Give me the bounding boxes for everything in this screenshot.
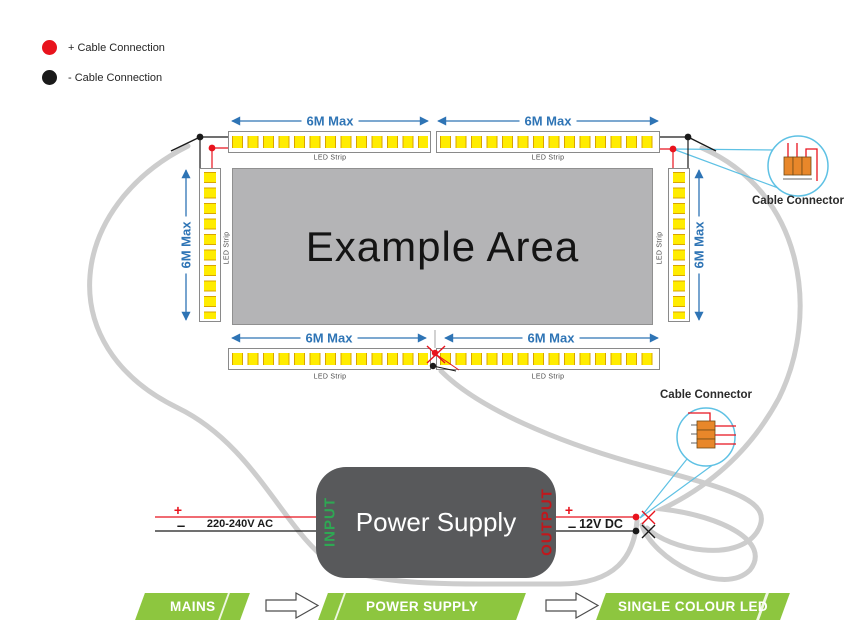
legend-positive-label: + Cable Connection: [68, 42, 165, 54]
connector-callout-circle-bottom: [677, 408, 735, 466]
dc-plus-sign: +: [565, 502, 573, 518]
dimension-right: 6M Max: [692, 217, 707, 274]
led-strip-caption-top-left: LED Strip: [314, 155, 347, 162]
led-row: [204, 172, 216, 319]
led-strip-bottom-left: [228, 348, 431, 370]
cable-connector-label-top: Cable Connector: [752, 195, 844, 207]
led-strip-top-right: [436, 131, 660, 153]
led-strip-left: [199, 168, 221, 322]
flow-arrow-1: [266, 593, 318, 618]
dimension-top-right: 6M Max: [520, 114, 577, 129]
legend-item-negative: - Cable Connection: [42, 70, 162, 85]
dc-voltage-label: 12V DC: [579, 517, 623, 531]
negative-cable-dot-icon: [42, 70, 57, 85]
ac-voltage-label: 220-240V AC: [207, 518, 273, 530]
connector-callout-circle-top: [768, 136, 828, 196]
led-row: [232, 136, 428, 148]
banner-slash: [333, 593, 347, 620]
ac-plus-sign: +: [174, 502, 182, 518]
dc-minus-sign: –: [568, 519, 576, 536]
example-area: Example Area: [232, 168, 653, 325]
led-strip-top-left: [228, 131, 431, 153]
flow-step-power-supply-label: POWER SUPPLY: [366, 599, 478, 614]
cable-connector-glyph-top: [783, 143, 817, 181]
legend-item-positive: + Cable Connection: [42, 40, 165, 55]
ac-minus-sign: –: [177, 518, 185, 535]
power-supply-output-label: OUTPUT: [539, 488, 556, 556]
banner-slash: [217, 593, 231, 620]
dimension-left: 6M Max: [179, 217, 194, 274]
led-strip-caption-top-right: LED Strip: [532, 155, 565, 162]
wires-top-left: [171, 134, 228, 168]
led-strip-caption-left: LED Strip: [224, 232, 231, 265]
flow-step-single-colour-led: SINGLE COLOUR LED: [596, 593, 790, 620]
led-strip-caption-bottom-left: LED Strip: [314, 374, 347, 381]
flow-step-single-colour-led-label: SINGLE COLOUR LED: [618, 599, 768, 614]
led-strip-right: [668, 168, 690, 322]
dimension-bottom-right: 6M Max: [523, 331, 580, 346]
example-area-label: Example Area: [306, 223, 579, 271]
led-row: [232, 353, 428, 365]
positive-cable-dot-icon: [42, 40, 57, 55]
led-strip-caption-bottom-right: LED Strip: [532, 374, 565, 381]
flow-arrow-2: [546, 593, 598, 618]
flow-step-mains: MAINS: [135, 593, 250, 620]
cable-right-loop: [642, 148, 800, 579]
wiring-diagram-canvas: + Cable Connection - Cable Connection 6M…: [0, 0, 850, 638]
dimension-bottom-left: 6M Max: [301, 331, 358, 346]
power-supply-title: Power Supply: [356, 507, 516, 538]
led-row: [440, 353, 657, 365]
led-row: [440, 136, 657, 148]
led-strip-bottom-right: [436, 348, 660, 370]
flow-step-power-supply: POWER SUPPLY: [318, 593, 526, 620]
power-supply-input-label: INPUT: [322, 497, 339, 547]
dimension-top-left: 6M Max: [302, 114, 359, 129]
led-row: [673, 172, 685, 319]
power-supply-box: Power Supply: [316, 467, 556, 578]
legend-negative-label: - Cable Connection: [68, 72, 162, 84]
led-strip-caption-right: LED Strip: [657, 232, 664, 265]
cable-connector-label-bottom: Cable Connector: [660, 389, 752, 401]
wires-top-right: [660, 134, 716, 168]
cable-connector-glyph-bottom: [688, 413, 736, 448]
flow-step-mains-label: MAINS: [170, 599, 216, 614]
